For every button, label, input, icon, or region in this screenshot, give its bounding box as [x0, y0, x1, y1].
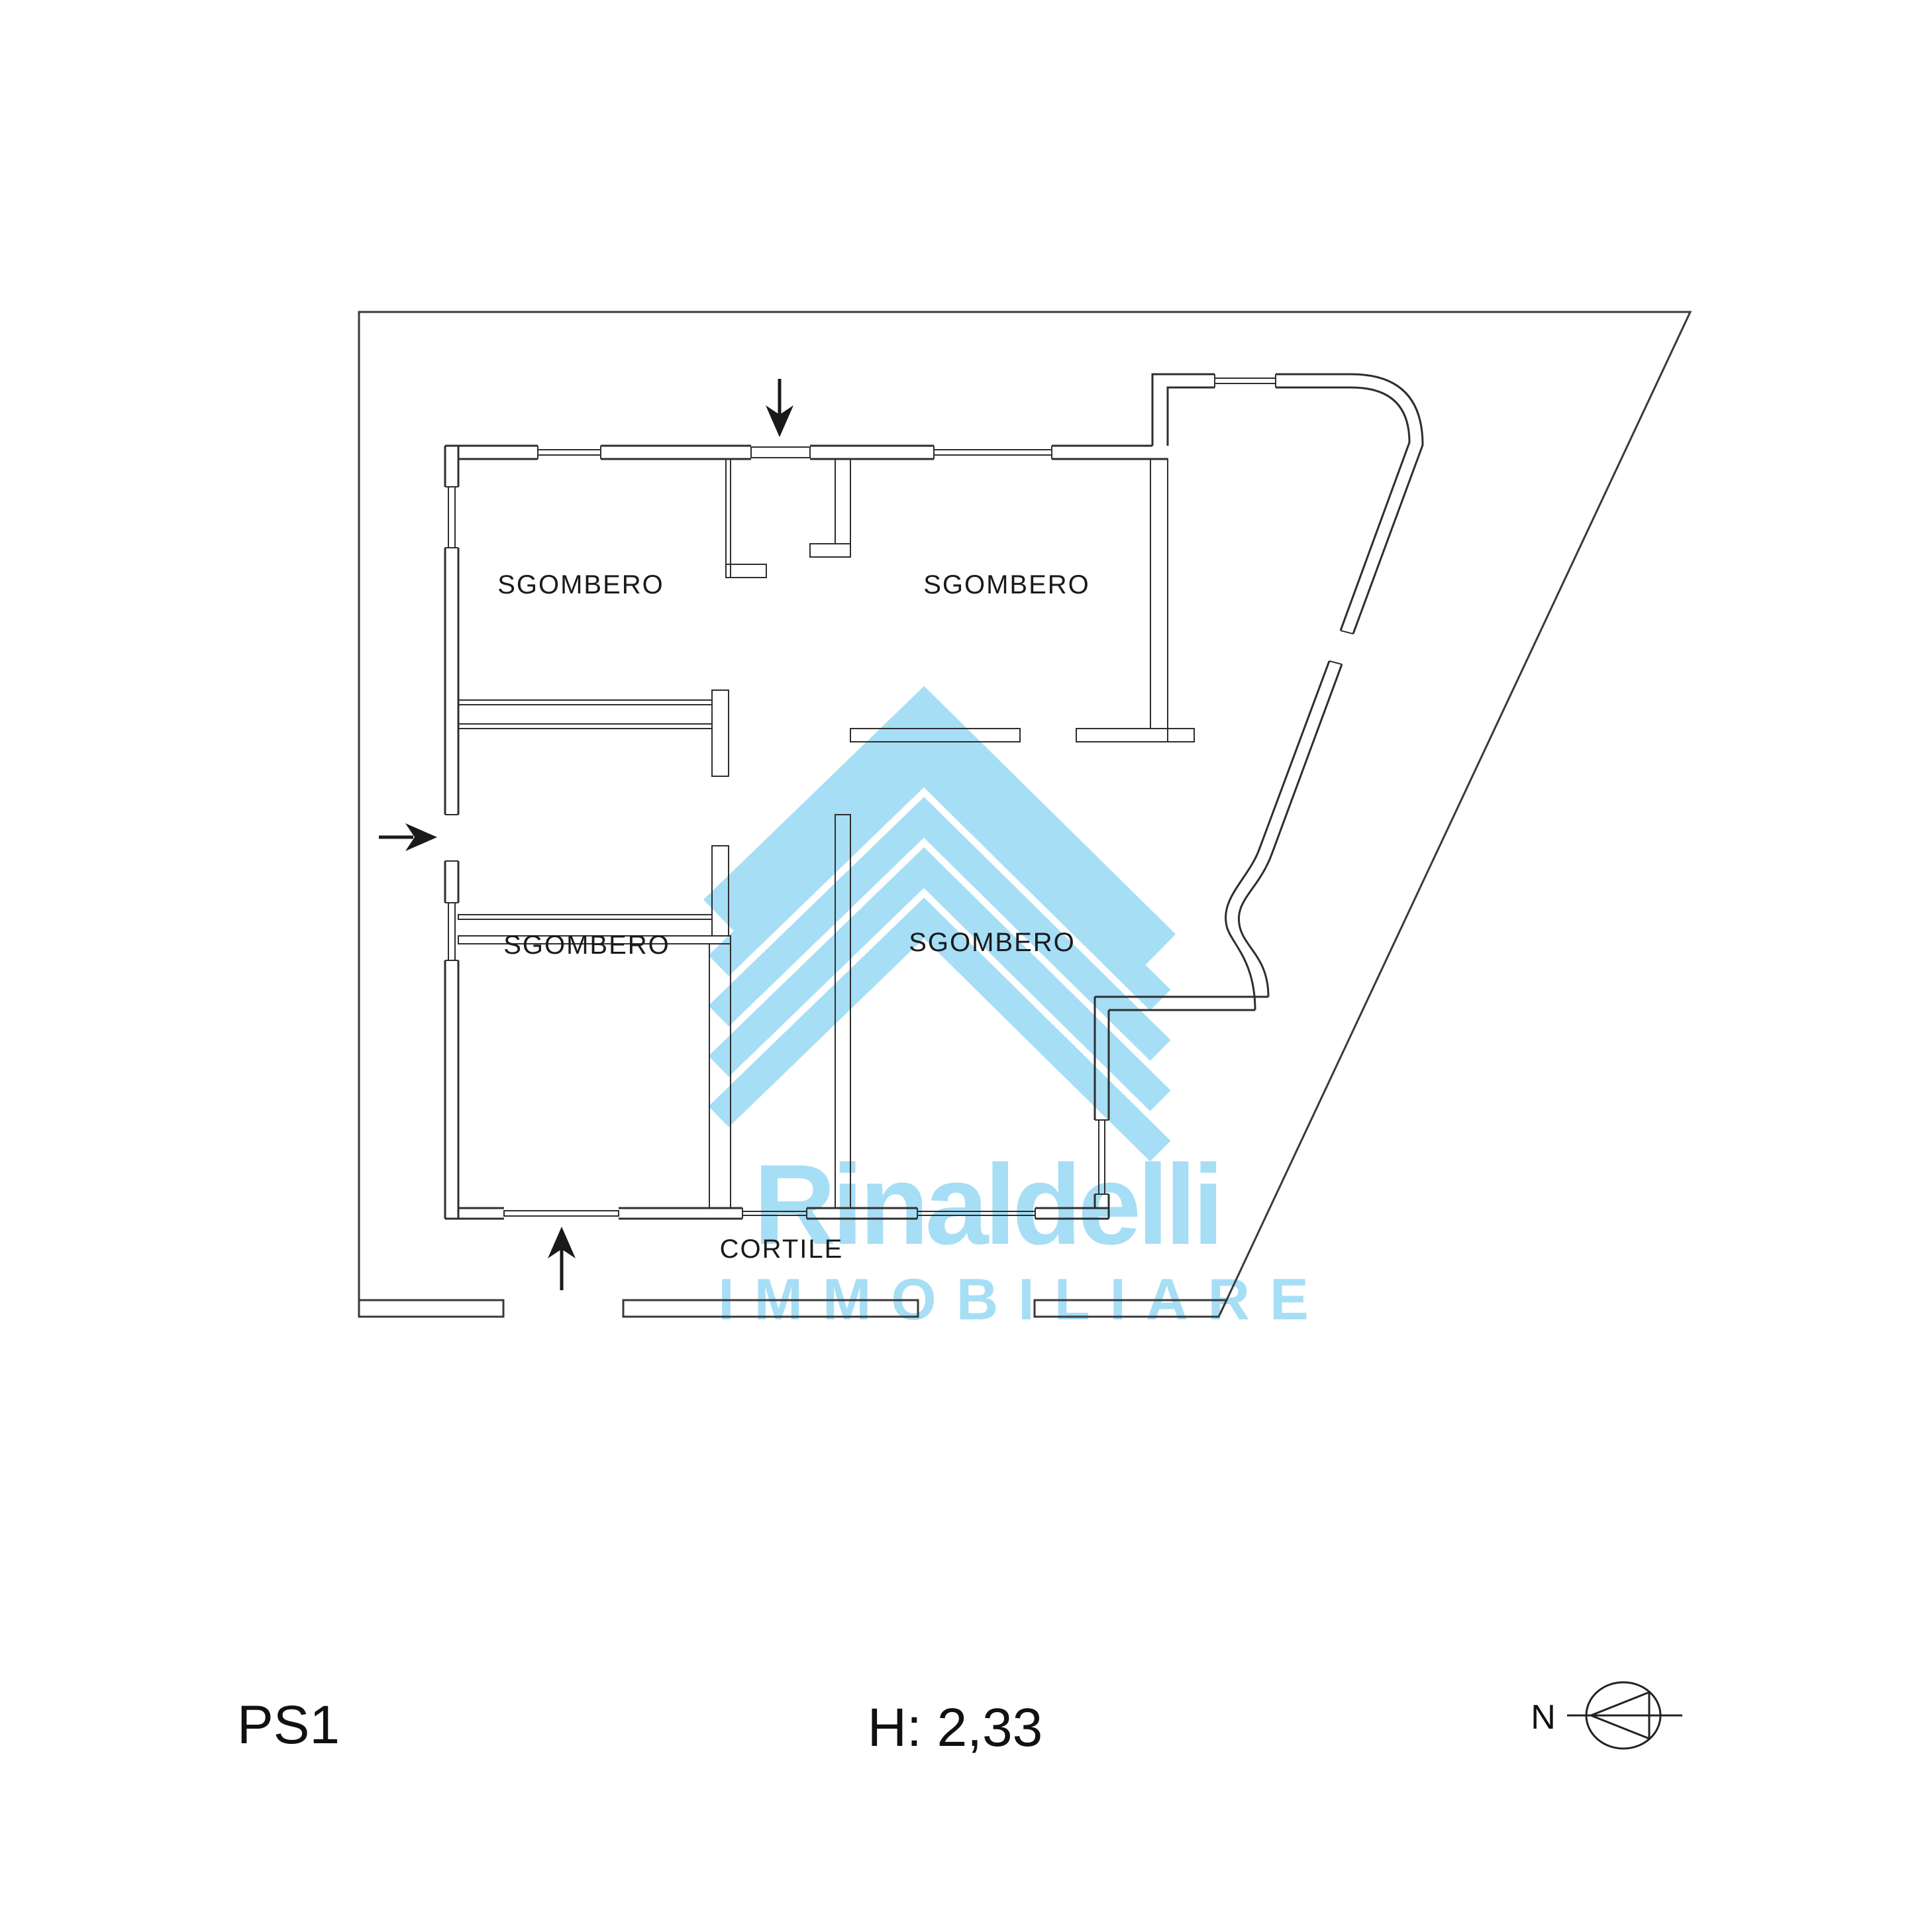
door-bottom-entrance [504, 1211, 619, 1216]
door-terrace-diagonal [1329, 631, 1353, 664]
room-label-sgombero-1: SGOMBERO [497, 570, 664, 599]
fence-bar [359, 1300, 503, 1317]
window-left-2 [445, 903, 458, 960]
door-top-entrance [751, 447, 810, 458]
room-label-sgombero-2: SGOMBERO [923, 570, 1090, 599]
terrace-parapet [1152, 374, 1423, 1010]
floorplan-page: Rinaldelli IMMOBILIARE [0, 0, 1932, 1932]
floor-code-label: PS1 [237, 1695, 340, 1755]
floorplan-drawing: Rinaldelli IMMOBILIARE [0, 0, 1932, 1932]
window-terrace-top [1215, 374, 1276, 387]
room-label-sgombero-3: SGOMBERO [909, 928, 1076, 957]
entrance-arrow-right [379, 823, 437, 851]
window-top-1 [538, 446, 601, 459]
compass-icon: N [1531, 1682, 1682, 1749]
north-label: N [1531, 1698, 1556, 1737]
ceiling-height-label: H: 2,33 [868, 1698, 1042, 1758]
area-label-cortile: CORTILE [720, 1235, 844, 1264]
window-left-1 [445, 487, 458, 548]
room-label-sgombero-4: SGOMBERO [503, 931, 670, 960]
window-top-2 [934, 446, 1052, 459]
entrance-arrow-down [766, 379, 793, 437]
door-left-entrance [445, 815, 458, 861]
entrance-arrow-up [548, 1227, 576, 1290]
